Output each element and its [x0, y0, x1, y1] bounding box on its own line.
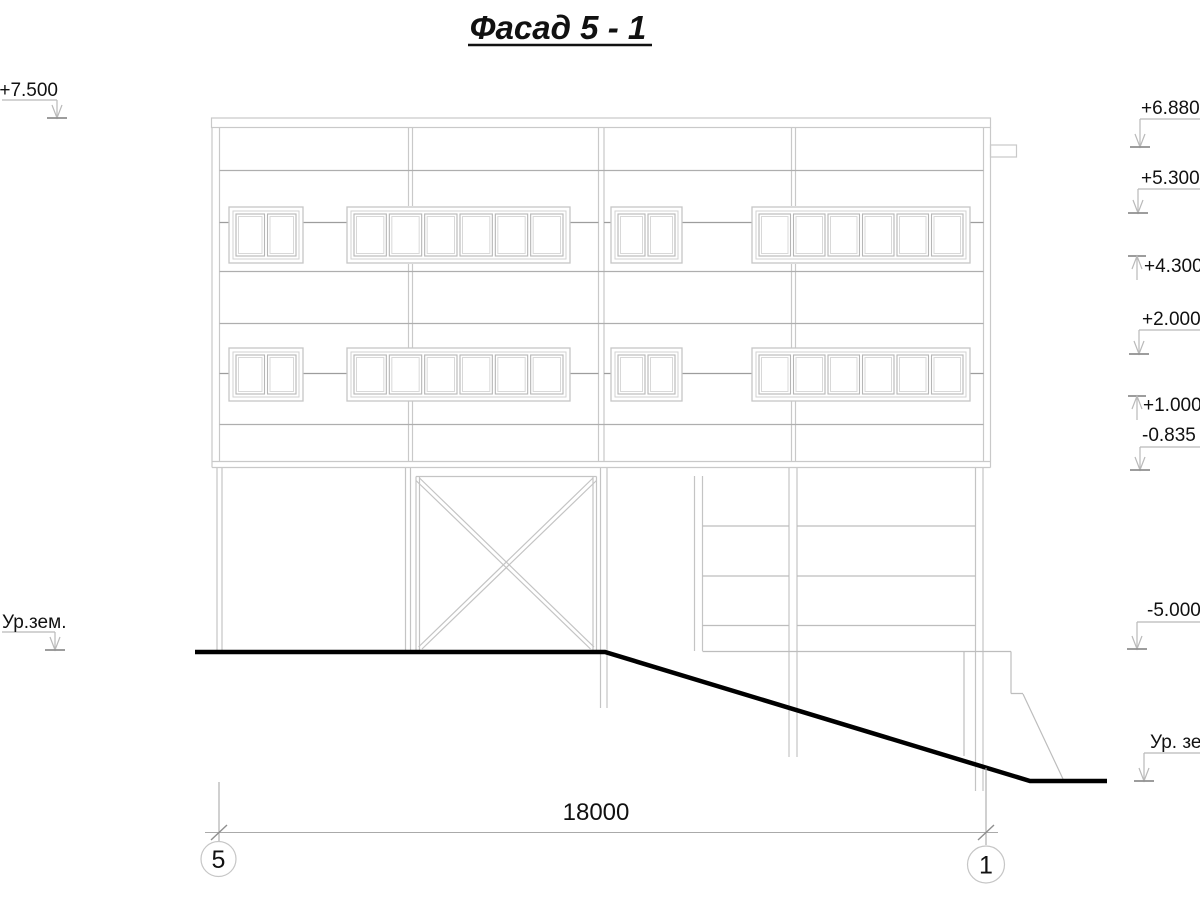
window-pane: [425, 214, 457, 256]
elevation-arrow-up-icon: [1132, 396, 1142, 420]
elevation-mark: +1.000: [1128, 395, 1200, 420]
window-pane: [425, 355, 457, 394]
elevation-mark: +7.500: [0, 80, 67, 118]
window-pane: [897, 355, 929, 394]
elevation-mark-label: Ур.зем.: [2, 612, 66, 633]
window-pane: [794, 214, 826, 256]
window-pane: [354, 214, 386, 256]
elevation-mark-label: +1.000: [1143, 395, 1200, 416]
window-pane: [618, 355, 645, 394]
column: [217, 468, 222, 651]
window-pane: [495, 355, 527, 394]
window-pane: [863, 355, 895, 394]
elevation-mark: Ур. зе: [1134, 732, 1200, 781]
foundation-outline: [703, 652, 1064, 780]
elevation-mark: -0.835: [1130, 425, 1200, 470]
ground-line: [195, 652, 1107, 781]
panel-joint-left: [409, 128, 413, 461]
window-band-lines: [220, 223, 984, 374]
window-strip: [752, 207, 970, 263]
windows-layer: [229, 207, 970, 401]
window-pane: [794, 355, 826, 394]
window-pane: [268, 355, 297, 394]
elevation-mark: +4.300: [1128, 256, 1200, 280]
elevation-mark-label: +2.000: [1142, 309, 1200, 330]
window: [611, 207, 682, 263]
building-bottom-edge: [212, 462, 991, 468]
window-pane: [759, 355, 791, 394]
window-pane: [268, 214, 297, 256]
window-pane: [828, 355, 860, 394]
window-pane: [236, 214, 265, 256]
drawing-title: Фасад 5 - 1: [470, 9, 646, 46]
window-strip: [347, 207, 570, 263]
wall-edges: [212, 128, 991, 468]
window-pane: [389, 214, 421, 256]
window-pane: [460, 355, 492, 394]
window-pane: [531, 214, 563, 256]
elevation-mark-label: -0.835: [1142, 425, 1196, 446]
window-pane: [236, 355, 265, 394]
building-elevation: [212, 118, 1017, 468]
elevation-mark: +5.300: [1128, 168, 1200, 213]
window-strip: [347, 348, 570, 401]
dimension: 18000 5 1: [201, 768, 1005, 883]
ground-profile-line: [195, 652, 1107, 781]
window: [229, 207, 303, 263]
elevation-mark: +6.880: [1130, 98, 1200, 147]
window: [229, 348, 303, 401]
window-pane: [932, 214, 964, 256]
pilotis-columns: [217, 468, 983, 791]
axis-number-left: 5: [212, 846, 226, 874]
column: [789, 468, 797, 757]
x-brace-diagonals: [416, 478, 597, 649]
window-pane: [495, 214, 527, 256]
window-pane: [648, 355, 675, 394]
elevation-mark: Ур.зем.: [2, 612, 66, 650]
elevation-mark-label: +6.880: [1141, 98, 1200, 119]
column: [601, 468, 608, 708]
elevation-mark-label: +4.300: [1144, 256, 1200, 277]
window-pane: [759, 214, 791, 256]
window-pane: [460, 214, 492, 256]
column: [976, 468, 984, 791]
elevation-mark-label: -5.000: [1147, 600, 1200, 621]
elevation-mark-label: Ур. зе: [1150, 732, 1200, 753]
column: [406, 468, 411, 651]
window-pane: [897, 214, 929, 256]
x-brace: [416, 477, 597, 651]
parapet-band: [212, 118, 991, 128]
elevation-mark: +2.000: [1129, 309, 1200, 354]
axis-number-right: 1: [979, 852, 993, 880]
panel-joint-right: [792, 128, 796, 461]
facade-drawing: Фасад 5 - 1 18000 5 1: [0, 0, 1200, 900]
column: [695, 476, 703, 651]
elevation-mark: -5.000: [1127, 600, 1200, 649]
window-strip: [752, 348, 970, 401]
dimension-value: 18000: [563, 799, 630, 826]
window-pane: [828, 214, 860, 256]
center-panel-joint: [599, 128, 605, 462]
understructure: [703, 526, 1064, 779]
floor-lines: [220, 171, 984, 425]
window: [611, 348, 682, 401]
window-pane: [648, 214, 675, 256]
window-pane: [354, 355, 386, 394]
window-pane: [389, 355, 421, 394]
elevation-mark-label: +7.500: [0, 80, 58, 101]
window-pane: [618, 214, 645, 256]
window-pane: [863, 214, 895, 256]
elevation-arrow-up-icon: [1132, 256, 1142, 280]
elevation-mark-label: +5.300: [1141, 168, 1200, 189]
window-pane: [932, 355, 964, 394]
roof-outlet: [991, 145, 1017, 157]
stair-lines: [703, 526, 976, 626]
window-pane: [531, 355, 563, 394]
